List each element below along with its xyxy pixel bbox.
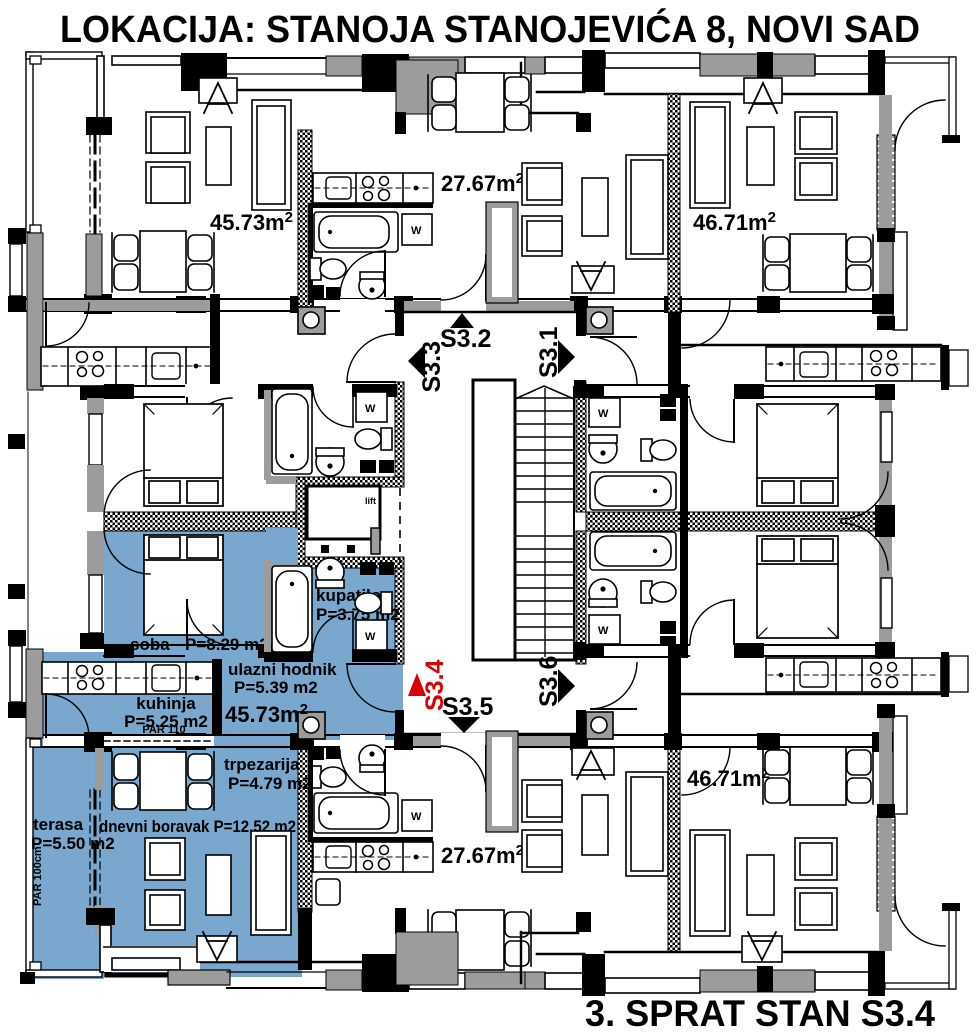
svg-text:LOKACIJA: STANOJA STANOJEVIĆA: LOKACIJA: STANOJA STANOJEVIĆA 8, NOVI SA… [60,7,920,51]
svg-text:W: W [411,811,422,823]
svg-text:W: W [598,408,609,420]
svg-text:46.71m2: 46.71m2 [687,765,770,791]
svg-text:45.73m2: 45.73m2 [225,701,308,727]
svg-text:kuhinja: kuhinja [136,694,196,713]
svg-text:45.73m2: 45.73m2 [210,209,293,235]
svg-text:PAR 110: PAR 110 [142,724,185,736]
svg-text:S3.1: S3.1 [535,326,563,378]
svg-text:W: W [365,631,376,643]
svg-text:S3.5: S3.5 [442,693,494,721]
svg-text:W: W [598,625,609,637]
svg-text:PAR 100cm: PAR 100cm [32,846,44,906]
svg-text:S3.2: S3.2 [440,325,491,353]
svg-text:trpezarija: trpezarija [224,755,300,774]
svg-text:27.67m2: 27.67m2 [441,170,524,196]
svg-text:ulazni hodnik: ulazni hodnik [228,660,337,679]
svg-text:27.67m2: 27.67m2 [441,842,524,868]
svg-text:S3.3: S3.3 [418,341,446,392]
svg-text:S3.6: S3.6 [535,656,563,707]
svg-text:soba: soba [130,635,170,654]
svg-text:P=4.79 m2: P=4.79 m2 [228,774,312,793]
svg-text:W: W [411,225,422,237]
svg-text:46.71m2: 46.71m2 [693,209,776,235]
svg-text:lift: lift [365,496,376,506]
svg-text:W: W [365,403,376,415]
svg-text:P=5.39 m2: P=5.39 m2 [234,678,318,697]
svg-text:P=8.29 m2: P=8.29 m2 [185,635,269,654]
svg-text:3. SPRAT STAN S3.4: 3. SPRAT STAN S3.4 [585,993,935,1034]
svg-text:terasa: terasa [33,815,84,834]
